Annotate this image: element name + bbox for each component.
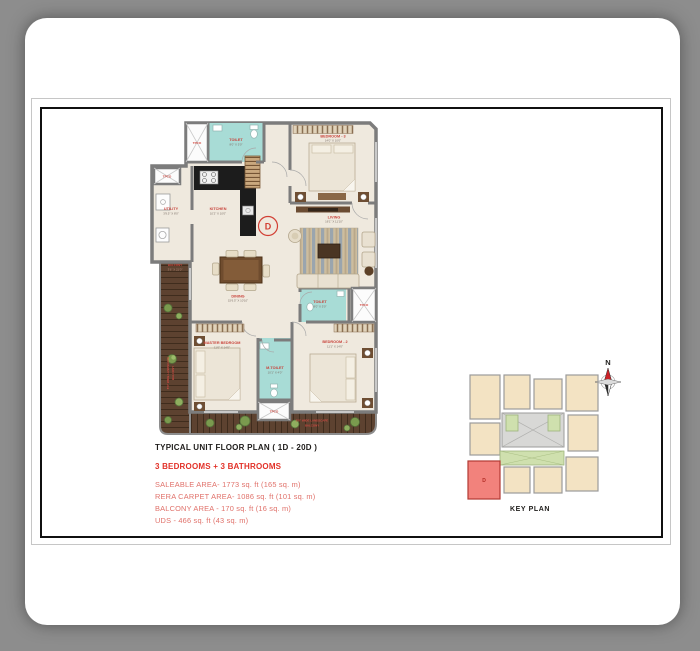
toilet-mid-label: TOILET <box>313 300 327 304</box>
balcony-note-bottom-2: BALCONY <box>305 424 319 428</box>
area-statistics: SALEABLE AREA- 1773 sq. ft (165 sq. m) R… <box>155 479 455 527</box>
tpco-shaft-right: TPCO <box>352 288 376 322</box>
tpco-shaft-bottom: TPCO <box>258 402 290 420</box>
svg-text:15'6.5" X 10'10": 15'6.5" X 10'10" <box>228 299 248 303</box>
balcony-left-deck <box>160 245 190 434</box>
key-plan-building: D <box>468 375 598 499</box>
utility-label: UTILITY <box>164 207 179 211</box>
svg-text:11'1" X 14'0": 11'1" X 14'0" <box>327 345 343 349</box>
svg-text:14'0" X 10'0": 14'0" X 10'0" <box>325 139 341 143</box>
north-arrow-icon: N <box>595 358 621 396</box>
svg-text:16'1" X 11'10": 16'1" X 11'10" <box>325 220 343 224</box>
master-bedroom-label: MASTER BEDROOM <box>204 341 241 345</box>
key-plan: D N KEY PLAN <box>460 355 625 517</box>
tpco-label: TPCO <box>270 410 279 414</box>
balcony-area-line: BALCONY AREA - 170 sq. ft (16 sq. m) <box>155 503 455 515</box>
svg-text:D: D <box>265 222 272 232</box>
svg-text:D: D <box>482 478 486 484</box>
plan-text-block: TYPICAL UNIT FLOOR PLAN ( 1D - 20D ) 3 B… <box>155 443 455 527</box>
master-toilet-label: M.TOILET <box>266 366 284 370</box>
tpco-shaft-left: TPCO <box>154 168 180 184</box>
tpco-shaft-topleft: TPCO <box>186 123 208 162</box>
tpco-label: TPCO <box>163 175 172 179</box>
uds-line: UDS - 466 sq. ft (43 sq. m) <box>155 515 455 527</box>
bedroom2-label: BEDROOM - 2 <box>322 340 347 344</box>
tpco-label: TPCO <box>360 303 369 307</box>
balcony-note-bottom-1: 5'0" WIDE LANDSCAPE <box>296 419 328 423</box>
floor-plan: TPCO TPCO TPCO TPCO D TOILET 8'0" X 5'0"… <box>150 110 382 440</box>
tpco-label: TPCO <box>193 141 202 145</box>
balcony-label: BALCONY <box>168 263 182 267</box>
key-plan-label: KEY PLAN <box>510 506 550 513</box>
svg-text:11'0" X 14'0": 11'0" X 14'0" <box>214 346 230 350</box>
plan-title: TYPICAL UNIT FLOOR PLAN ( 1D - 20D ) <box>155 443 455 452</box>
svg-text:8'0" X 5'0": 8'0" X 5'0" <box>313 305 326 309</box>
saleable-area-line: SALEABLE AREA- 1773 sq. ft (165 sq. m) <box>155 479 455 491</box>
svg-text:3'6" X 21'0": 3'6" X 21'0" <box>168 268 183 272</box>
svg-text:10'2" X 10'0": 10'2" X 10'0" <box>210 212 226 216</box>
key-plan-highlighted-unit: D <box>468 461 500 499</box>
toilet-top-label: TOILET <box>229 138 243 142</box>
kitchen-label: KITCHEN <box>210 207 227 211</box>
svg-text:10'1" X 4'0": 10'1" X 4'0" <box>268 371 283 375</box>
svg-text:8'0" X 5'0": 8'0" X 5'0" <box>229 143 242 147</box>
balcony-note-left-1: 5'0" WIDE LANDSCAPE <box>166 357 170 389</box>
brochure-page: TPCO TPCO TPCO TPCO D TOILET 8'0" X 5'0"… <box>25 18 680 625</box>
plan-subtitle: 3 BEDROOMS + 3 BATHROOMS <box>155 462 455 471</box>
rera-carpet-area-line: RERA CARPET AREA- 1086 sq. ft (101 sq. m… <box>155 491 455 503</box>
svg-text:3'9.5" X 8'0": 3'9.5" X 8'0" <box>163 212 179 216</box>
balcony-note-left-2: BALCONY <box>171 366 175 380</box>
svg-text:N: N <box>605 358 610 367</box>
